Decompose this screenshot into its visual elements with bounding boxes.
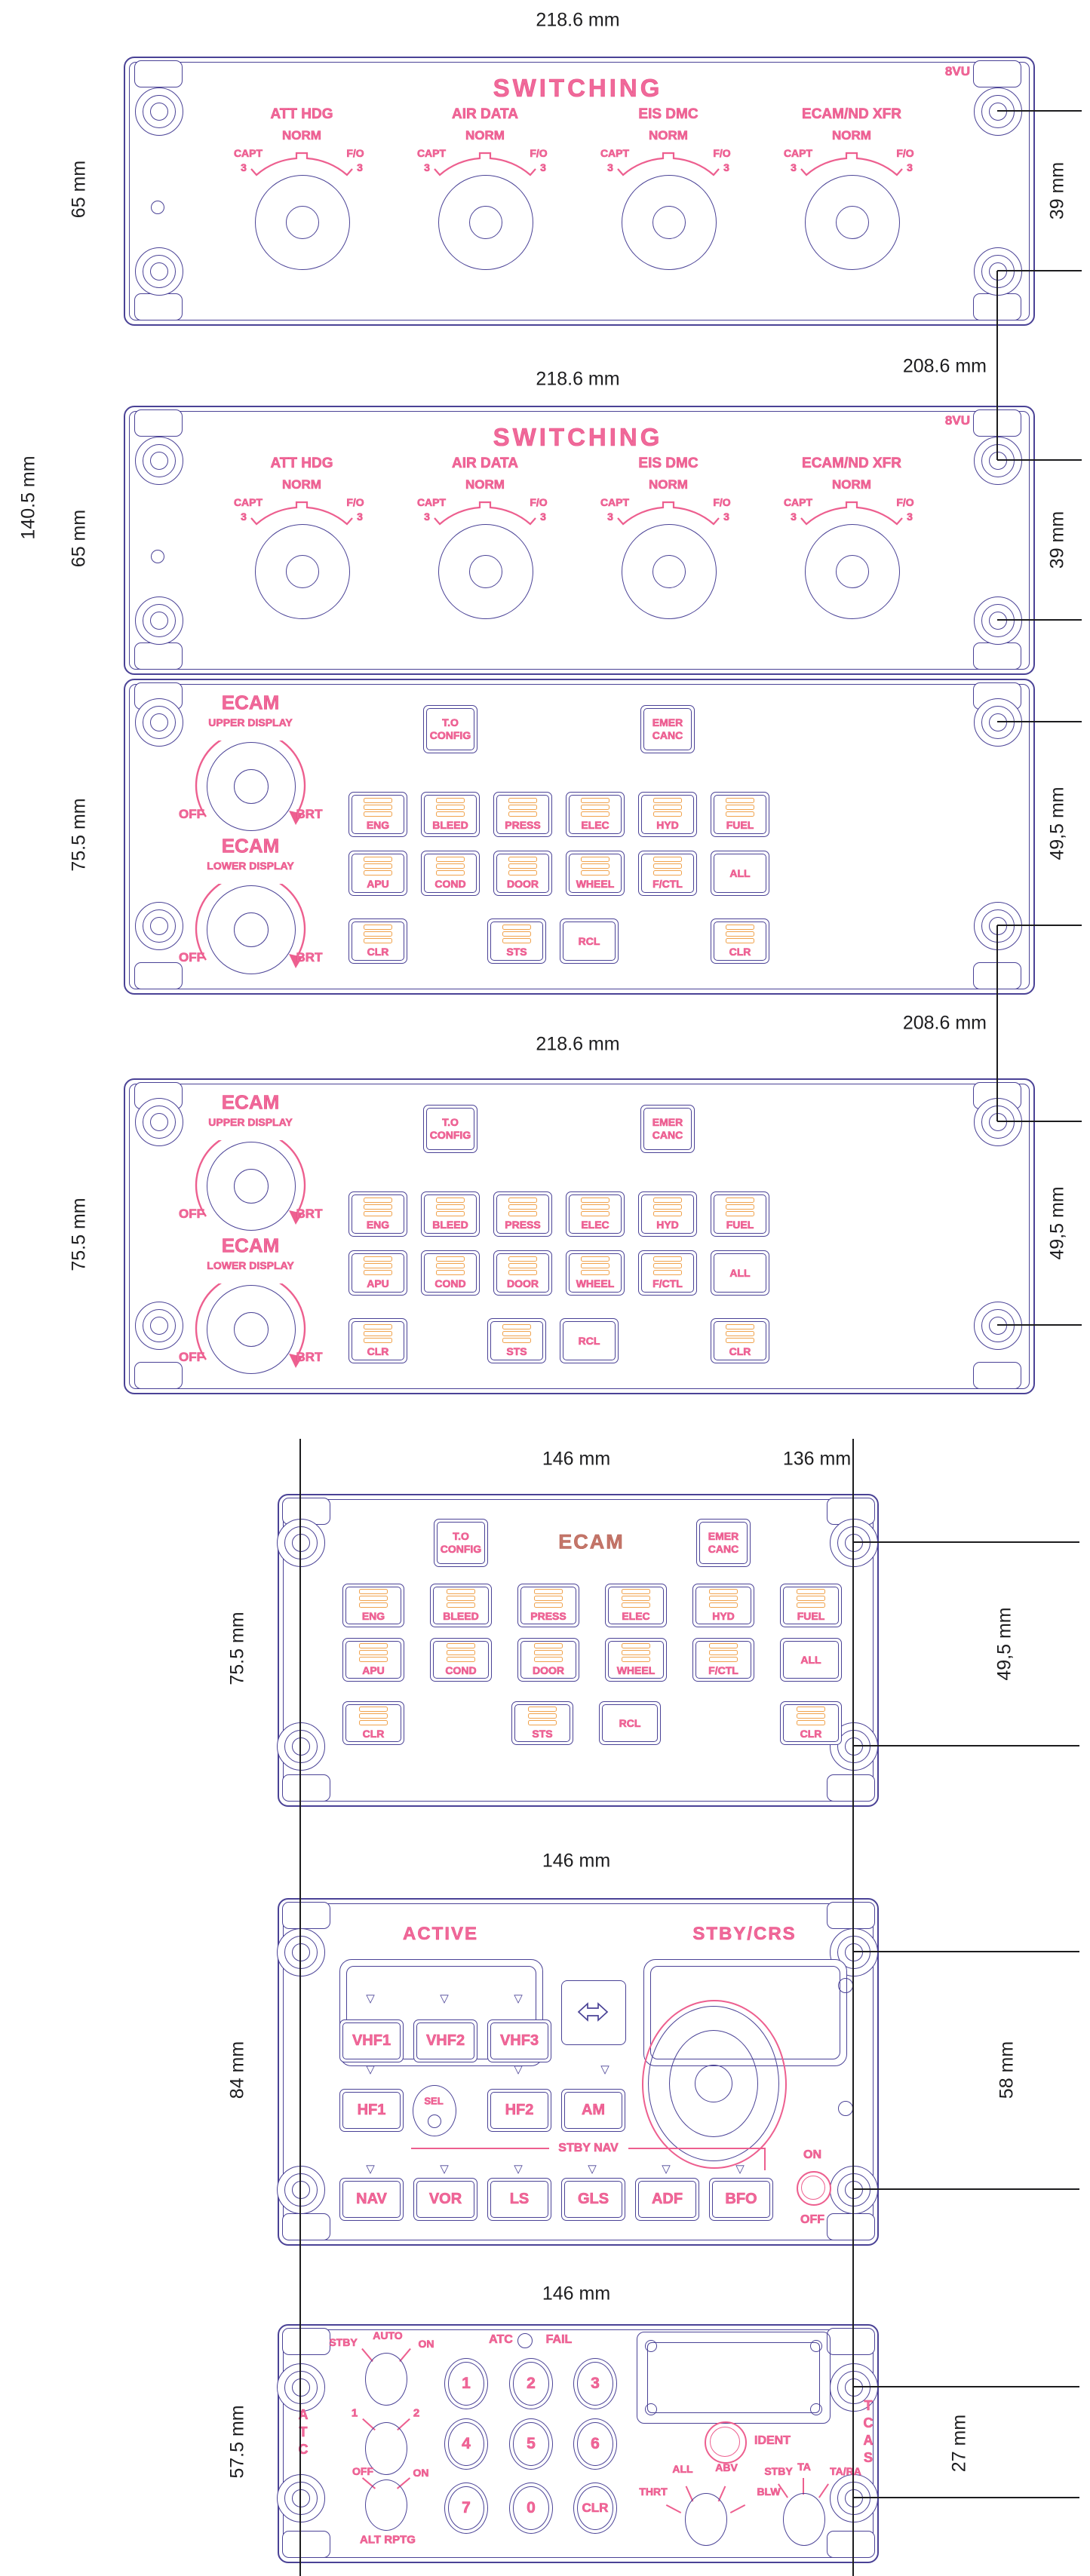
pointer-triangle-icon: ▽	[514, 1992, 523, 2005]
panel-title: ECAM	[558, 1531, 625, 1554]
dim-height-p5: 75.5 mm	[227, 1612, 249, 1685]
dim-height-p7: 57.5 mm	[227, 2405, 249, 2478]
transfer-double-arrow-icon	[575, 2000, 611, 2024]
tuning-knob-center	[695, 2065, 732, 2102]
ecp-button-sts[interactable]: STS	[487, 918, 546, 964]
ecp-button-clr-left[interactable]: CLR	[348, 1318, 407, 1363]
ecp-button-sts[interactable]: STS	[511, 1701, 573, 1745]
lit-bars-icon	[364, 857, 392, 876]
active-window-label: ACTIVE	[403, 1924, 478, 1945]
lit-bars-icon	[797, 1707, 825, 1725]
lit-bars-icon	[359, 1643, 388, 1662]
lit-bars-icon	[653, 1198, 682, 1216]
sel-indicator	[413, 2085, 456, 2136]
ecp-button-door[interactable]: DOOR	[493, 851, 552, 896]
screw-hole	[974, 437, 1022, 485]
pointer-triangle-icon: ▽	[514, 2162, 523, 2176]
ecp-button-press[interactable]: PRESS	[493, 792, 552, 837]
key-clr[interactable]: CLR	[573, 2482, 617, 2534]
index-hole	[151, 550, 164, 563]
screw-hole	[277, 1722, 325, 1771]
ecp-button-apu[interactable]: APU	[342, 1638, 404, 1682]
dim-screw-p6: 58 mm	[996, 2041, 1018, 2099]
dim-height-p6: 84 mm	[227, 2041, 249, 2099]
stby-nav-label: STBY NAV	[558, 2142, 618, 2155]
mount-tab	[134, 293, 183, 320]
screw-hole	[830, 1519, 878, 1567]
lit-bars-icon	[359, 1589, 388, 1608]
ecp-button-wheel[interactable]: WHEEL	[605, 1638, 667, 1682]
pointer-triangle-icon: ▽	[440, 1992, 449, 2005]
dim-width-p6: 146 mm	[542, 1851, 610, 1872]
ecp-button-wheel[interactable]: WHEEL	[566, 1250, 625, 1296]
screw-hole	[830, 2474, 878, 2522]
vor-key[interactable]: VOR	[413, 2178, 477, 2221]
panel-id-label: 8VU	[945, 413, 970, 428]
screw-hole	[135, 698, 183, 747]
stby-nav-bracket	[411, 2148, 549, 2149]
emer-canc-button[interactable]: EMERCANC	[640, 1105, 695, 1153]
panel-id-label: 8VU	[945, 64, 970, 79]
upper-display-subtitle: UPPER DISPLAY	[208, 1116, 293, 1128]
lit-bars-icon	[581, 1256, 609, 1275]
lit-bars-icon	[359, 1707, 388, 1725]
mount-tab	[827, 2213, 875, 2240]
ecp-button-fuel[interactable]: FUEL	[780, 1584, 842, 1627]
upper-display-title: ECAM	[222, 692, 280, 715]
window-screw	[810, 2403, 822, 2415]
dim-height-p2: 65 mm	[69, 510, 91, 567]
tcas-side-label: TCAS	[861, 2398, 875, 2467]
lit-bars-icon	[436, 1198, 465, 1216]
nav-key[interactable]: NAV	[339, 2178, 404, 2221]
power-toggle-inner	[801, 2176, 825, 2200]
stby-nav-bracket-elbow	[764, 2148, 766, 2170]
leader-line	[853, 2497, 1079, 2498]
lit-bars-icon	[534, 1589, 563, 1608]
dim-screw-span-width: 136 mm	[783, 1449, 851, 1470]
am-key[interactable]: AM	[561, 2089, 625, 2132]
knob-center	[652, 206, 686, 239]
lit-bars-icon	[436, 1256, 465, 1275]
leader-line	[997, 270, 1082, 271]
eis-dmc-selector[interactable]: EIS DMC NORM CAPT F/O 3 3	[598, 455, 738, 622]
frequency-transfer-button[interactable]	[561, 1980, 626, 2045]
mount-tab	[134, 642, 183, 670]
screw-hole	[277, 2474, 325, 2522]
ecp-button-hyd[interactable]: HYD	[692, 1584, 754, 1627]
knob-center	[836, 555, 869, 588]
knob-center	[836, 206, 869, 239]
lit-bars-icon	[581, 798, 609, 817]
lit-bars-icon	[726, 798, 754, 817]
vhf1-key[interactable]: VHF1	[339, 2019, 404, 2062]
to-config-button[interactable]: T.OCONFIG	[423, 1105, 477, 1153]
lit-bars-icon	[581, 1198, 609, 1216]
pointer-triangle-icon: ▽	[366, 1992, 375, 2005]
ecp-button-hyd[interactable]: HYD	[638, 1191, 697, 1237]
lit-bars-icon	[797, 1589, 825, 1608]
mount-tab	[282, 1774, 330, 1802]
ecp-button-bleed[interactable]: BLEED	[421, 792, 480, 837]
lower-display-subtitle: LOWER DISPLAY	[207, 1259, 293, 1271]
key-0[interactable]: 0	[509, 2482, 553, 2534]
lit-bars-icon	[622, 1643, 650, 1662]
lower-display-title: ECAM	[222, 835, 280, 858]
key-4[interactable]: 4	[444, 2418, 488, 2470]
index-hole	[151, 201, 164, 214]
ecp-button-door[interactable]: DOOR	[517, 1638, 579, 1682]
dim-screw-span-1: 208.6 mm	[903, 356, 987, 378]
lit-bars-icon	[653, 798, 682, 817]
leader-line	[997, 925, 1082, 926]
ecp-button-hyd[interactable]: HYD	[638, 792, 697, 837]
screw-hole	[135, 87, 183, 136]
knob-tick	[803, 2478, 804, 2495]
dim-width-top: 218.6 mm	[536, 10, 619, 32]
screw-hole	[135, 437, 183, 485]
att-hdg-selector[interactable]: ATT HDG NORM CAPT F/O 3 3	[232, 106, 372, 273]
ecp-button-bleed[interactable]: BLEED	[430, 1584, 492, 1627]
ecp-button-eng[interactable]: ENG	[342, 1584, 404, 1627]
ecp-button-fctl[interactable]: F/CTL	[638, 851, 697, 896]
ecp-button-clr-left[interactable]: CLR	[348, 918, 407, 964]
alt-rptg-knob[interactable]	[365, 2479, 407, 2531]
ecp-button-apu[interactable]: APU	[348, 851, 407, 896]
fail-lamp	[517, 2333, 533, 2348]
ecp-button-fuel[interactable]: FUEL	[711, 1191, 769, 1237]
lit-bars-icon	[436, 857, 465, 876]
air-data-selector[interactable]: AIR DATA NORM CAPT F/O 3 3	[415, 106, 555, 273]
ecp-button-clr-right[interactable]: CLR	[711, 918, 769, 964]
leader-line	[853, 2188, 1079, 2190]
ecp-button-cond[interactable]: COND	[421, 851, 480, 896]
screw-hole	[974, 87, 1022, 136]
eis-dmc-selector[interactable]: EIS DMC NORM CAPT F/O 3 3	[598, 106, 738, 273]
ecp-button-wheel[interactable]: WHEEL	[566, 851, 625, 896]
pointer-triangle-icon: ▽	[366, 2162, 375, 2176]
screw-hole	[277, 2166, 325, 2214]
ecp-button-press[interactable]: PRESS	[493, 1191, 552, 1237]
bfo-key[interactable]: BFO	[709, 2178, 773, 2221]
ecp-button-rcl[interactable]: RCL	[560, 1318, 619, 1363]
lit-bars-icon	[436, 798, 465, 817]
screw-hole	[974, 698, 1022, 747]
to-config-button[interactable]: T.OCONFIG	[434, 1519, 488, 1567]
gls-key[interactable]: GLS	[561, 2178, 625, 2221]
mount-tab	[282, 2531, 330, 2558]
screw-hole	[135, 1302, 183, 1350]
ecp-button-elec[interactable]: ELEC	[566, 792, 625, 837]
ecp-button-door[interactable]: DOOR	[493, 1250, 552, 1296]
dim-width-p4: 218.6 mm	[536, 1034, 619, 1056]
mount-tab	[134, 962, 183, 989]
lit-bars-icon	[622, 1589, 650, 1608]
lower-display-title: ECAM	[222, 1234, 280, 1258]
ecp-button-apu[interactable]: APU	[348, 1250, 407, 1296]
pointer-triangle-icon: ▽	[514, 2062, 523, 2076]
lit-bars-icon	[502, 1324, 531, 1343]
ecp-button-elec[interactable]: ELEC	[605, 1584, 667, 1627]
dim-line	[996, 271, 998, 460]
ecp-button-clr-right[interactable]: CLR	[711, 1318, 769, 1363]
leader-line	[853, 1745, 1079, 1746]
screw-hole	[135, 902, 183, 950]
panel-title: SWITCHING	[493, 423, 663, 452]
emer-canc-button[interactable]: EMERCANC	[696, 1519, 751, 1567]
emer-canc-button[interactable]: EMERCANC	[640, 705, 695, 753]
lit-bars-icon	[364, 1256, 392, 1275]
mount-tab	[134, 60, 183, 87]
lit-bars-icon	[534, 1643, 563, 1662]
dim-screw-p1: 39 mm	[1047, 162, 1069, 219]
alt-rptg-label: ALT RPTG	[360, 2534, 416, 2547]
screw-hole	[135, 247, 183, 296]
lit-bars-icon	[726, 1324, 754, 1343]
ident-label: IDENT	[754, 2434, 791, 2448]
screw-hole	[974, 902, 1022, 950]
to-config-button[interactable]: T.OCONFIG	[423, 705, 477, 753]
indicator-hole	[838, 1978, 853, 1993]
screw-hole	[277, 1519, 325, 1567]
key-5[interactable]: 5	[509, 2418, 553, 2470]
code-display-inner	[647, 2342, 820, 2413]
leader-line	[997, 619, 1082, 621]
lit-bars-icon	[364, 1324, 392, 1343]
screw-hole	[135, 596, 183, 645]
dim-screw-p2: 39 mm	[1047, 511, 1069, 569]
ls-key[interactable]: LS	[487, 2178, 551, 2221]
tcas-mode-knob[interactable]	[685, 2493, 727, 2546]
knob-center	[234, 1312, 269, 1347]
window-screw	[645, 2403, 657, 2415]
ecp-button-rcl[interactable]: RCL	[560, 918, 619, 964]
pointer-triangle-icon: ▽	[600, 2062, 609, 2076]
dim-height-p1: 65 mm	[69, 161, 91, 218]
mount-tab	[827, 1774, 875, 1802]
lit-bars-icon	[581, 857, 609, 876]
dim-line	[996, 925, 998, 1121]
lit-bars-icon	[447, 1589, 475, 1608]
ecp-button-clr-right[interactable]: CLR	[780, 1701, 842, 1745]
screw-hole	[277, 1928, 325, 1976]
lit-bars-icon	[653, 1256, 682, 1275]
panel-title: SWITCHING	[493, 74, 663, 103]
dim-height-p3: 75.5 mm	[69, 798, 91, 871]
ecp-button-rcl[interactable]: RCL	[599, 1701, 661, 1745]
key-2[interactable]: 2	[509, 2358, 553, 2409]
lit-bars-icon	[364, 925, 392, 943]
ecp-button-cond[interactable]: COND	[421, 1250, 480, 1296]
dim-screw-p4: 49,5 mm	[1047, 1186, 1069, 1259]
screw-hole	[830, 2166, 878, 2214]
lit-bars-icon	[709, 1643, 738, 1662]
ecp-button-all[interactable]: ALL	[711, 851, 769, 896]
att-hdg-selector[interactable]: ATT HDG NORM CAPT F/O 3 3	[232, 455, 372, 622]
indicator-hole	[838, 2101, 853, 2116]
pointer-triangle-icon: ▽	[588, 2162, 597, 2176]
leader-line	[997, 459, 1082, 461]
mount-tab	[282, 1902, 330, 1929]
dim-width-p5: 146 mm	[542, 1449, 610, 1470]
sel-lamp	[428, 2114, 441, 2128]
mount-tab	[973, 1362, 1021, 1389]
air-data-selector[interactable]: AIR DATA NORM CAPT F/O 3 3	[415, 455, 555, 622]
leader-line	[997, 110, 1082, 112]
mount-tab	[134, 1362, 183, 1389]
stby-crs-window-label: STBY/CRS	[692, 1924, 796, 1945]
window-screw	[645, 2340, 657, 2352]
atc-mode-knob[interactable]	[365, 2353, 407, 2406]
ecp-button-fuel[interactable]: FUEL	[711, 792, 769, 837]
ecp-button-all[interactable]: ALL	[780, 1638, 842, 1682]
key-6[interactable]: 6	[573, 2418, 617, 2470]
mount-tab	[973, 60, 1021, 87]
knob-center	[652, 555, 686, 588]
ecp-button-elec[interactable]: ELEC	[566, 1191, 625, 1237]
dim-line-right	[852, 1439, 854, 2576]
upper-display-title: ECAM	[222, 1091, 280, 1115]
dim-screw-p7: 27 mm	[949, 2415, 971, 2472]
leader-line	[853, 2386, 1079, 2387]
lit-bars-icon	[508, 1256, 537, 1275]
dim-width-p2: 218.6 mm	[536, 369, 619, 391]
hf1-key[interactable]: HF1	[339, 2089, 404, 2132]
hf2-key[interactable]: HF2	[487, 2089, 551, 2132]
panel-dimension-drawing: 8VU SWITCHING ATT HDG NORM CAPT F/O 3 3 …	[0, 0, 1090, 2576]
ta-ra-knob[interactable]	[783, 2493, 825, 2546]
mount-tab	[282, 2213, 330, 2240]
key-1[interactable]: 1	[444, 2358, 488, 2409]
lit-bars-icon	[508, 1198, 537, 1216]
mount-tab	[827, 2531, 875, 2558]
lit-bars-icon	[502, 925, 531, 943]
window-screw	[810, 2340, 822, 2352]
ident-button-inner	[710, 2427, 740, 2457]
leader-line	[997, 1121, 1082, 1122]
adf-key[interactable]: ADF	[635, 2178, 699, 2221]
knob-center	[234, 912, 269, 947]
dim-width-p7: 146 mm	[542, 2283, 610, 2305]
lit-bars-icon	[508, 798, 537, 817]
key-7[interactable]: 7	[444, 2482, 488, 2534]
ecp-button-cond[interactable]: COND	[430, 1638, 492, 1682]
leader-line	[853, 1541, 1079, 1543]
knob-center	[286, 555, 319, 588]
ecp-button-eng[interactable]: ENG	[348, 1191, 407, 1237]
ecp-button-fctl[interactable]: F/CTL	[692, 1638, 754, 1682]
mount-tab	[282, 2328, 330, 2355]
dim-screw-span-2: 208.6 mm	[903, 1013, 987, 1035]
ecp-button-press[interactable]: PRESS	[517, 1584, 579, 1627]
lit-bars-icon	[364, 798, 392, 817]
mount-tab	[134, 409, 183, 437]
dim-combined-height: 140.5 mm	[18, 455, 40, 539]
lit-bars-icon	[364, 1198, 392, 1216]
lit-bars-icon	[653, 857, 682, 876]
dim-line-left	[299, 1439, 301, 2576]
screw-hole	[135, 1098, 183, 1146]
lower-display-subtitle: LOWER DISPLAY	[207, 860, 293, 872]
stby-nav-bracket	[628, 2148, 766, 2149]
dim-screw-p3: 49,5 mm	[1047, 787, 1069, 860]
knob-center	[469, 555, 502, 588]
ecp-button-sts[interactable]: STS	[487, 1318, 546, 1363]
mount-tab	[973, 642, 1021, 670]
screw-hole	[277, 2363, 325, 2412]
pointer-triangle-icon: ▽	[366, 2062, 375, 2076]
mount-tab	[827, 1902, 875, 1929]
knob-center	[286, 206, 319, 239]
screw-hole	[974, 596, 1022, 645]
ecam-nd-xfr-selector[interactable]: ECAM/ND XFR NORM CAPT F/O 3 3	[781, 455, 922, 622]
pointer-triangle-icon: ▽	[735, 2162, 745, 2176]
key-3[interactable]: 3	[573, 2358, 617, 2409]
screw-hole	[974, 247, 1022, 296]
knob-center	[469, 206, 502, 239]
lit-bars-icon	[528, 1707, 557, 1725]
leader-line	[853, 1951, 1079, 1952]
mount-tab	[827, 2328, 875, 2355]
knob-center	[234, 1169, 269, 1204]
lit-bars-icon	[508, 857, 537, 876]
lit-bars-icon	[726, 1198, 754, 1216]
leader-line	[997, 721, 1082, 722]
pointer-triangle-icon: ▽	[440, 2162, 449, 2176]
lit-bars-icon	[726, 925, 754, 943]
screw-hole	[974, 1098, 1022, 1146]
ecp-button-eng[interactable]: ENG	[348, 792, 407, 837]
screw-hole	[974, 1302, 1022, 1350]
atc-side-label: ATC	[296, 2407, 310, 2459]
dim-screw-p5: 49,5 mm	[994, 1607, 1016, 1680]
ecp-button-bleed[interactable]: BLEED	[421, 1191, 480, 1237]
dim-height-p4: 75.5 mm	[69, 1198, 91, 1271]
ecp-button-all[interactable]: ALL	[711, 1250, 769, 1296]
vhf2-key[interactable]: VHF2	[413, 2019, 477, 2062]
ecp-button-fctl[interactable]: F/CTL	[638, 1250, 697, 1296]
knob-center	[234, 769, 269, 804]
lit-bars-icon	[447, 1643, 475, 1662]
vhf3-key[interactable]: VHF3	[487, 2019, 551, 2062]
upper-display-subtitle: UPPER DISPLAY	[208, 716, 293, 728]
lit-bars-icon	[709, 1589, 738, 1608]
pointer-triangle-icon: ▽	[662, 2162, 671, 2176]
leader-line	[997, 1324, 1082, 1326]
ecp-button-clr-left[interactable]: CLR	[342, 1701, 404, 1745]
ecam-nd-xfr-selector[interactable]: ECAM/ND XFR NORM CAPT F/O 3 3	[781, 106, 922, 273]
